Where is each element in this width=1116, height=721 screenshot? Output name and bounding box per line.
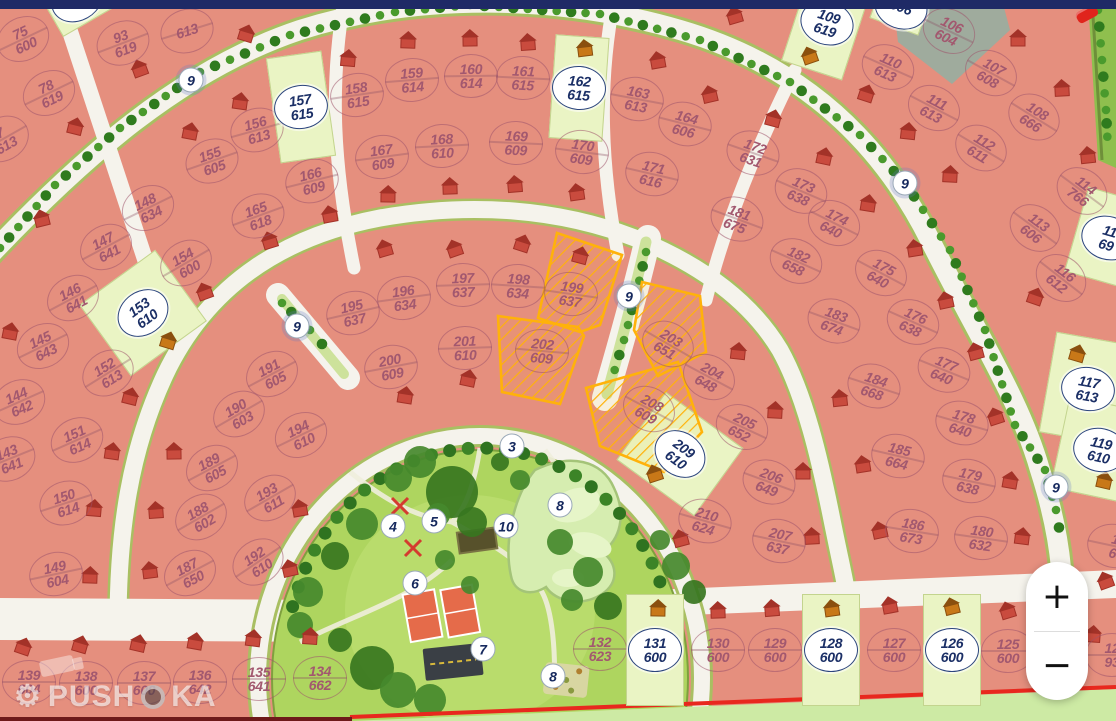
watermark-text-2: KA [171,680,216,714]
park-marker-8[interactable]: 8 [541,664,566,689]
plot-label-135[interactable]: 135641 [232,657,286,701]
brand-watermark: ⚙ PUSH KA [14,680,217,714]
plot-label-134[interactable]: 134662 [293,656,347,700]
road-marker-9[interactable]: 9 [1044,475,1069,500]
road-marker-9[interactable]: 9 [893,171,918,196]
zoom-out-button[interactable]: − [1026,632,1088,701]
park-marker-5[interactable]: 5 [422,509,447,534]
gear-icon: ⚙ [14,682,42,712]
plot-label-131[interactable]: 131600 [628,628,682,672]
road-marker-9[interactable]: 9 [617,284,642,309]
park-marker-6[interactable]: 6 [403,571,428,596]
zoom-in-button[interactable]: + [1026,562,1088,631]
wheel-icon [141,685,165,709]
plot-label-132[interactable]: 132623 [573,627,627,671]
park-marker-8[interactable]: 8 [548,493,573,518]
park-marker-7[interactable]: 7 [471,637,496,662]
plot-label-127[interactable]: 127600 [867,628,921,672]
park-marker-4[interactable]: 4 [381,514,406,539]
park-marker-10[interactable]: 10 [494,514,519,539]
watermark-text-1: PUSH [48,680,135,714]
plot-label-130[interactable]: 130600 [691,628,745,672]
zoom-control[interactable]: + − [1026,562,1088,700]
plot-label-126[interactable]: 126600 [925,628,979,672]
top-navy-bar [0,0,1116,9]
park-marker-3[interactable]: 3 [500,434,525,459]
plot-label-129[interactable]: 129600 [748,628,802,672]
plot-label-128[interactable]: 128600 [804,628,858,672]
road-marker-9[interactable]: 9 [285,314,310,339]
road-marker-9[interactable]: 9 [179,68,204,93]
